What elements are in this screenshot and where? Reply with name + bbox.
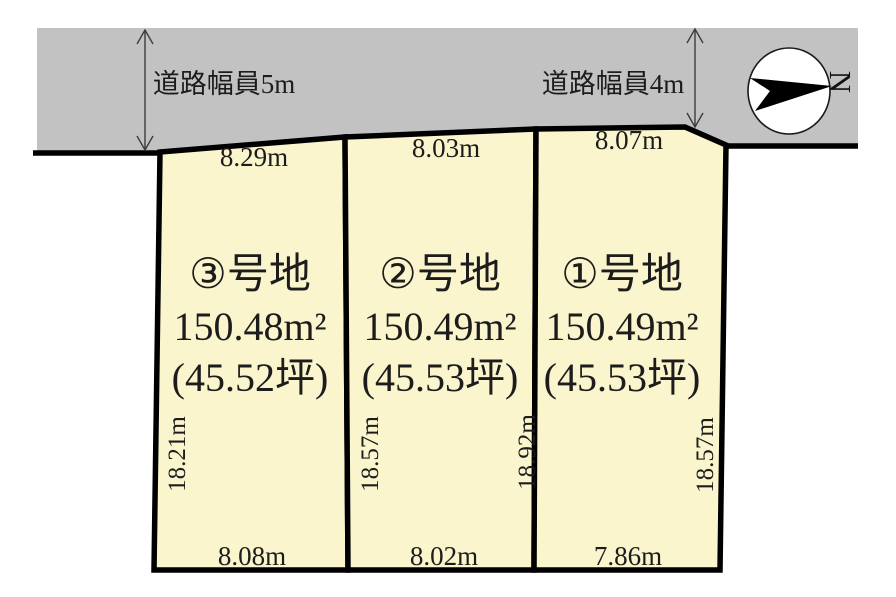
plot-1-name: ①号地 bbox=[561, 252, 683, 298]
plot-1-label: ①号地 150.49m² (45.53坪) bbox=[544, 252, 701, 400]
dim-side-west: 18.21m bbox=[164, 416, 191, 492]
plot-3-name: ③号地 bbox=[189, 252, 311, 298]
road-width-label-right: 道路幅員4m bbox=[542, 69, 685, 99]
plot-2-label: ②号地 150.49m² (45.53坪) bbox=[362, 252, 519, 400]
plot-2-shape bbox=[345, 129, 536, 570]
diagram-canvas: 道路幅員5m 道路幅員4m N 8.29m 8.03m 8.07m 8.08m … bbox=[0, 0, 896, 597]
plot-1-area-tsubo: (45.53坪) bbox=[544, 355, 701, 400]
dim-top-plot2: 8.03m bbox=[412, 133, 480, 163]
road-width-label-left: 道路幅員5m bbox=[153, 69, 296, 99]
plot-3-area-tsubo: (45.52坪) bbox=[172, 355, 329, 400]
plot-2-area-tsubo: (45.53坪) bbox=[362, 355, 519, 400]
plot-2-name: ②号地 bbox=[379, 252, 501, 298]
dim-side-boundary-2-1: 18.92m bbox=[514, 414, 541, 490]
plot-3-area-m2: 150.48m² bbox=[173, 304, 326, 349]
plot-1-area-m2: 150.49m² bbox=[545, 304, 698, 349]
dim-top-plot1: 8.07m bbox=[595, 125, 663, 155]
dim-side-boundary-3-2: 18.57m bbox=[357, 416, 384, 492]
plot-2-area-m2: 150.49m² bbox=[363, 304, 516, 349]
plot-3-label: ③号地 150.48m² (45.52坪) bbox=[172, 252, 329, 400]
dim-bottom-plot3: 8.08m bbox=[218, 541, 286, 571]
dim-bottom-plot2: 8.02m bbox=[410, 541, 478, 571]
dim-side-east: 18.57m bbox=[692, 417, 719, 493]
plot-3-shape bbox=[154, 137, 348, 570]
compass-north-letter: N bbox=[823, 71, 858, 93]
dim-bottom-plot1: 7.86m bbox=[594, 541, 662, 571]
land-subdivision-diagram: 道路幅員5m 道路幅員4m N 8.29m 8.03m 8.07m 8.08m … bbox=[0, 0, 896, 597]
dim-top-plot3: 8.29m bbox=[220, 142, 288, 172]
